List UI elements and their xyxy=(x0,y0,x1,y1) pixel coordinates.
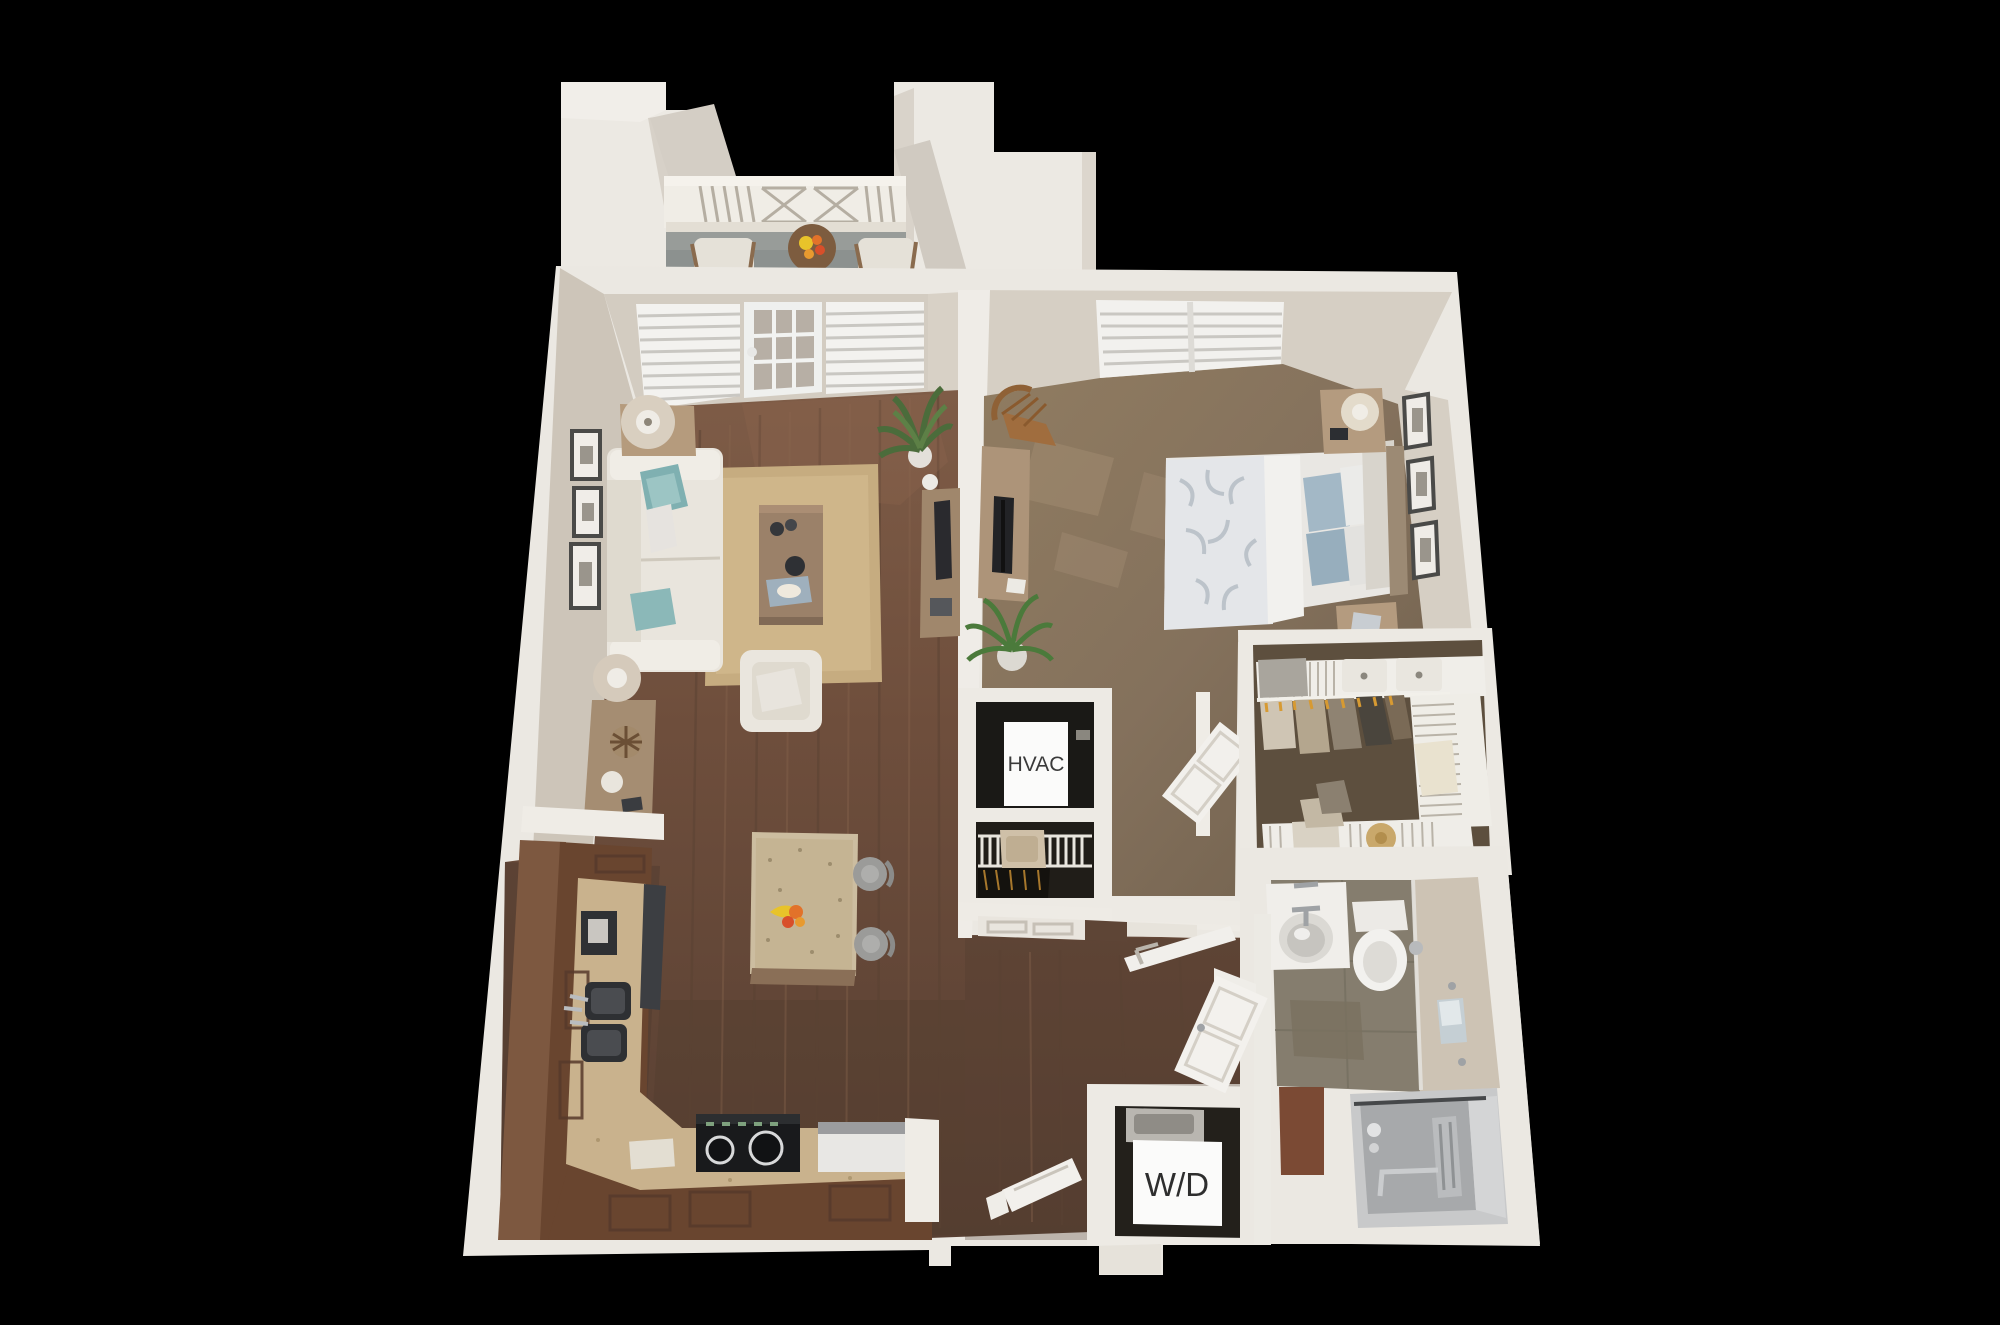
svg-text:W/D: W/D xyxy=(1145,1166,1209,1203)
svg-text:HVAC: HVAC xyxy=(1008,753,1065,776)
